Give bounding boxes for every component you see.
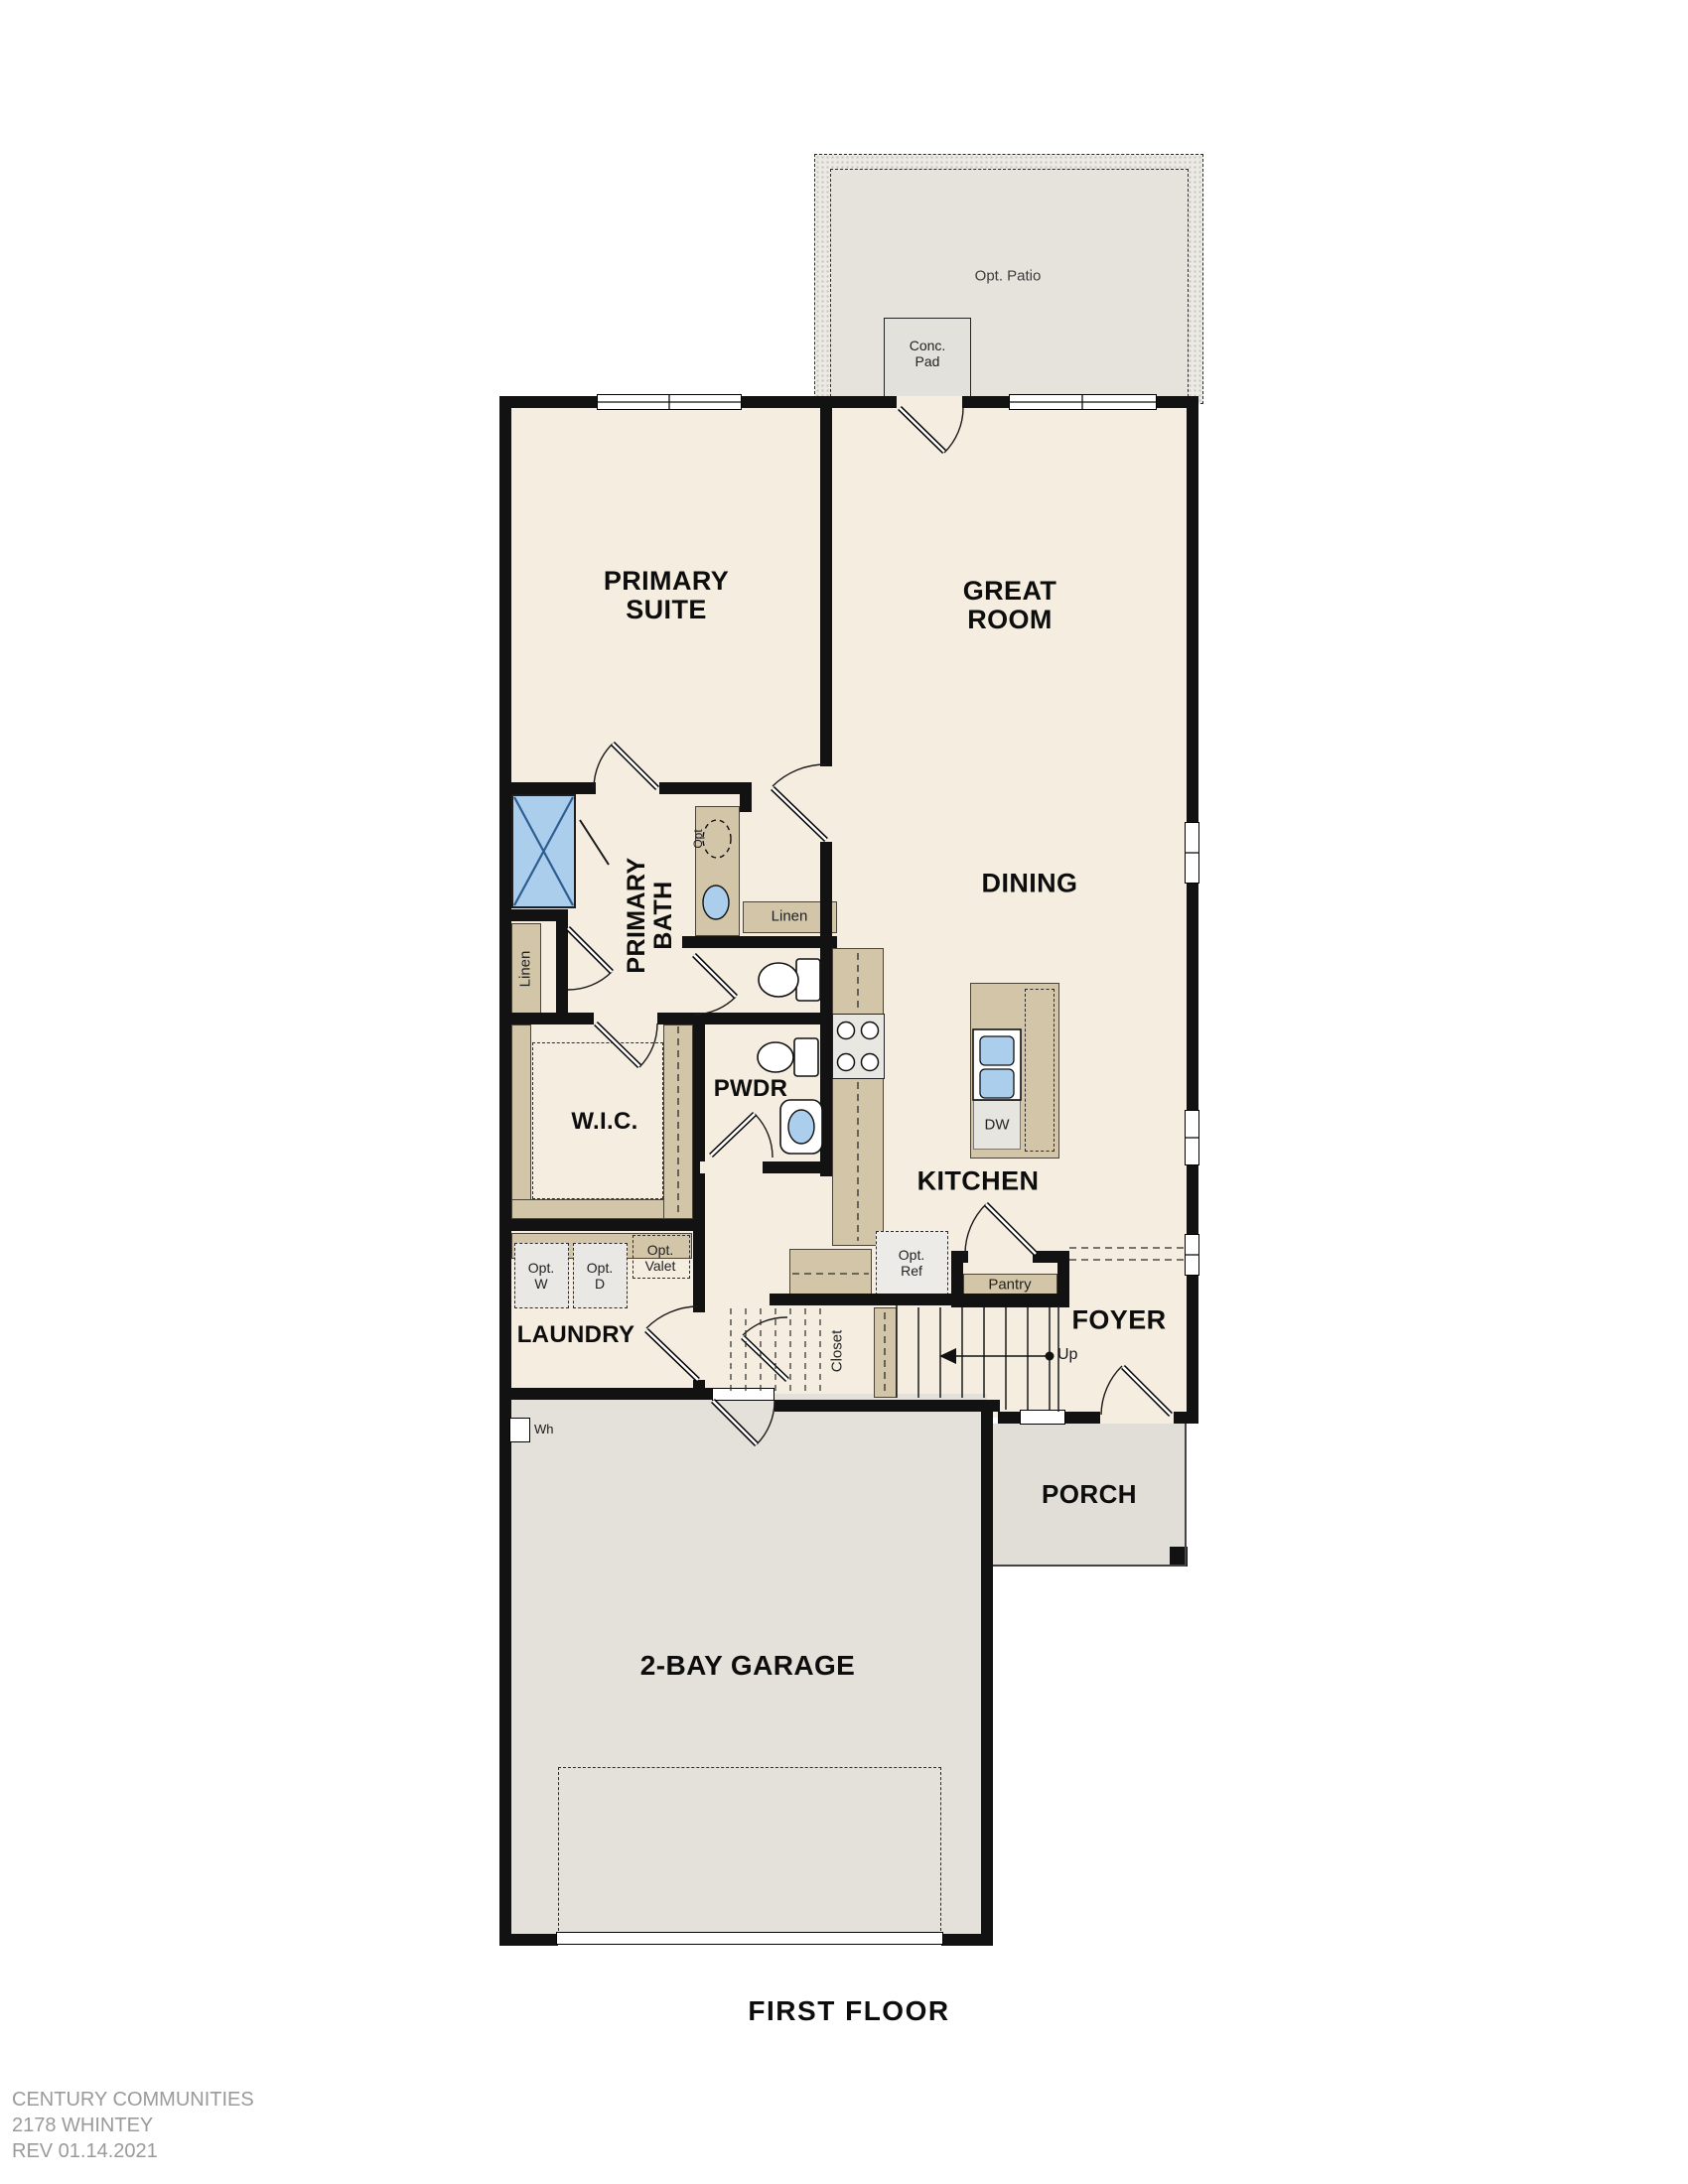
window — [1185, 1234, 1199, 1276]
wic-wardrobe — [663, 1024, 693, 1219]
room-label-dining: DINING — [982, 869, 1078, 897]
room-label-foyer: FOYER — [1071, 1305, 1166, 1334]
pantry-label: Pantry — [988, 1277, 1031, 1294]
title-block: CENTURY COMMUNITIES 2178 WHINTEY REV 01.… — [12, 2087, 254, 2164]
room-label-laundry: LAUNDRY — [517, 1321, 635, 1349]
opt-sink-label: Opt — [691, 829, 705, 848]
up-label: Up — [1057, 1346, 1077, 1364]
room-label-great-room: GREAT ROOM — [935, 577, 1084, 634]
wic-shelf-left — [511, 1024, 531, 1219]
porch-post — [1170, 1547, 1188, 1567]
window — [597, 394, 742, 410]
wall — [499, 396, 511, 1946]
wall — [659, 782, 752, 794]
opt-washer-label: Opt. W — [521, 1260, 561, 1292]
bath-vanity — [695, 806, 740, 936]
wall — [499, 1219, 705, 1231]
room-label-kitchen: KITCHEN — [917, 1166, 1040, 1195]
room-label-garage: 2-BAY GARAGE — [640, 1651, 855, 1681]
room-label-primary-bath: PRIMARY BATH — [624, 826, 677, 1005]
opt-ref-label: Opt. Ref — [890, 1247, 933, 1279]
window — [1185, 1110, 1199, 1165]
closet-label: Closet — [829, 1330, 846, 1373]
wall — [499, 1934, 558, 1946]
shower — [511, 794, 576, 908]
island-overhang-outline — [1025, 989, 1055, 1152]
window — [1020, 1410, 1065, 1425]
kitchen-counter — [832, 948, 884, 1246]
wall — [941, 1934, 993, 1946]
opt-patio-label: Opt. Patio — [975, 268, 1042, 285]
garage-door-outline — [558, 1767, 941, 1936]
footer-revision: REV 01.14.2021 — [12, 2138, 254, 2164]
wall — [740, 794, 752, 812]
window — [1185, 822, 1199, 884]
water-heater — [509, 1418, 530, 1442]
linen-label-hall: Linen — [772, 908, 808, 925]
door-opening — [897, 396, 962, 408]
stair-stringer — [874, 1307, 897, 1398]
room-label-wic: W.I.C. — [571, 1108, 637, 1136]
door-opening — [700, 1161, 763, 1173]
window — [1009, 394, 1157, 410]
footer-company: CENTURY COMMUNITIES — [12, 2087, 254, 2113]
room-label-porch: PORCH — [1042, 1480, 1137, 1508]
conc-pad-label: Conc. Pad — [900, 338, 955, 369]
door-opening — [820, 766, 832, 842]
wall — [499, 1013, 594, 1024]
garage-entry-door — [712, 1388, 774, 1401]
water-heater-label: Wh — [534, 1422, 554, 1436]
kitchen-counter-south — [789, 1249, 872, 1298]
dw-label: DW — [985, 1117, 1010, 1134]
room-label-pwdr: PWDR — [714, 1075, 788, 1103]
wall — [981, 1400, 993, 1946]
wall — [556, 909, 568, 1015]
wall — [682, 936, 837, 948]
opt-dryer-label: Opt. D — [580, 1260, 620, 1292]
stove — [832, 1014, 885, 1079]
opt-valet-label: Opt. Valet — [632, 1242, 689, 1274]
floor-title: FIRST FLOOR — [748, 1996, 949, 2026]
linen-label-bath: Linen — [517, 951, 534, 988]
room-label-primary-suite: PRIMARY SUITE — [562, 567, 771, 624]
wall — [511, 782, 596, 794]
wall — [774, 1400, 1000, 1412]
door-opening — [1100, 1412, 1174, 1424]
wall — [657, 1013, 832, 1024]
door-opening — [596, 782, 659, 794]
wall — [499, 1388, 712, 1400]
wall — [951, 1296, 1069, 1307]
footer-plan-name: 2178 WHINTEY — [12, 2113, 254, 2138]
garage-door — [556, 1932, 943, 1945]
floor-plan-page: Opt. Patio Conc. Pad PRIMARY SUITE GREAT… — [0, 0, 1688, 2184]
